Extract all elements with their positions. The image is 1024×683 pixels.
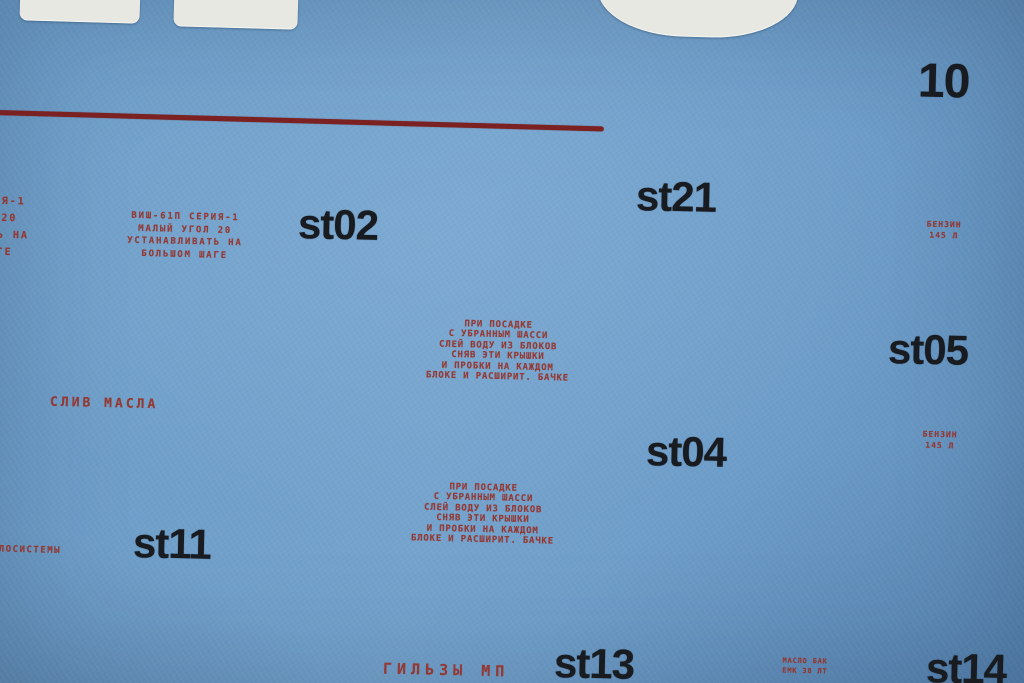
- stencil-id-st05: st05: [888, 328, 969, 372]
- stencil-water-drain-text-2: ПРИ ПОСАДКЕ С УБРАННЫМ ШАССИ СЛЕЙ ВОДУ И…: [389, 481, 576, 548]
- white-blank-decal-middle: [173, 0, 298, 30]
- stencil-line: 145 л: [910, 439, 970, 451]
- stencil-id-st11: st11: [133, 522, 212, 566]
- stencil-id-st04: st04: [646, 430, 727, 474]
- stencil-fuel-text-lower: БЕНЗИН 145 л: [910, 428, 970, 451]
- stencil-propeller-text: ВИШ-61П СЕРИЯ-1 МАЛЫЙ УГОЛ 20 УСТАНАВЛИВ…: [107, 209, 262, 262]
- stencil-oil-drain-text: СЛИВ МАСЛА: [50, 395, 159, 412]
- stencil-id-st21: st21: [636, 175, 717, 219]
- stencil-line: ВИШ-61П СЕРИЯ-1: [0, 190, 46, 211]
- stencil-fuel-text-upper: БЕНЗИН 145 л: [914, 218, 974, 241]
- stencil-line: ЕМК 38 ЛТ: [768, 665, 842, 677]
- stencil-id-st02: st02: [298, 203, 379, 247]
- stencil-water-drain-text-1: ПРИ ПОСАДКЕ С УБРАННЫМ ШАССИ СЛЕЙ ВОДУ И…: [404, 318, 591, 385]
- stencil-propeller-text-cut: ВИШ-61П СЕРИЯ-1 МАЛЫЙ УГОЛ 20 УСТАНАВЛИВ…: [0, 190, 46, 262]
- stencil-line: 145 л: [914, 229, 974, 241]
- stencil-id-st13: st13: [554, 642, 635, 683]
- stencil-oil-system-text-cut: МАСЛОСИСТЕМЫ: [0, 544, 61, 556]
- stencil-line: УСТАНАВЛИВАТЬ НА: [0, 224, 45, 245]
- stencil-oil-tank-text: МАСЛО БАК ЕМК 38 ЛТ: [768, 655, 842, 677]
- red-stripe-decal: [0, 110, 604, 131]
- stencil-cartridges-text: ГИЛЬЗЫ МП: [383, 660, 510, 681]
- sheet-number-label: 10: [917, 57, 969, 106]
- white-blank-decal-left: [19, 0, 140, 24]
- white-large-round-decal: [597, 0, 799, 40]
- decal-sheet-photo: 10 st02 st21 st05 st04 st11 st13 st14 ВИ…: [0, 0, 1024, 683]
- stencil-id-st14: st14: [926, 647, 1007, 683]
